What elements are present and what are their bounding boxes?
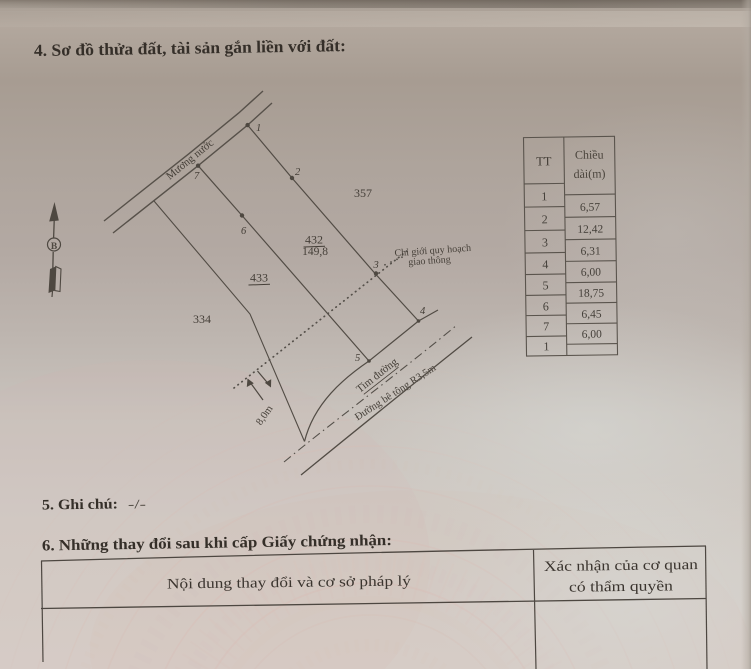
- svg-text:7: 7: [194, 171, 200, 182]
- svg-text:1: 1: [541, 189, 547, 203]
- svg-text:18,75: 18,75: [578, 288, 604, 300]
- svg-text:2: 2: [542, 212, 548, 226]
- svg-text:432: 432: [305, 233, 323, 247]
- svg-text:6,57: 6,57: [580, 202, 601, 214]
- svg-text:B: B: [51, 242, 58, 252]
- svg-text:6: 6: [241, 226, 247, 237]
- svg-text:433: 433: [250, 271, 268, 285]
- svg-text:6,00: 6,00: [581, 267, 602, 279]
- svg-text:5. Ghi chú:: 5. Ghi chú:: [42, 496, 118, 513]
- svg-text:dài(m): dài(m): [573, 166, 605, 180]
- svg-text:TT: TT: [536, 154, 552, 168]
- svg-text:4: 4: [420, 306, 426, 317]
- svg-text:6,00: 6,00: [582, 329, 603, 341]
- svg-text:6: 6: [543, 299, 549, 313]
- svg-text:3: 3: [542, 235, 548, 249]
- svg-text:4: 4: [542, 257, 548, 271]
- svg-text:12,42: 12,42: [577, 224, 603, 236]
- svg-text:149,8: 149,8: [302, 246, 328, 258]
- svg-text:6,45: 6,45: [581, 309, 602, 321]
- svg-text:1: 1: [543, 339, 549, 353]
- svg-text:có thẩm quyền: có thẩm quyền: [569, 578, 674, 595]
- svg-text:Chiều: Chiều: [575, 148, 604, 162]
- svg-text:2: 2: [295, 167, 301, 178]
- svg-text:5: 5: [355, 353, 360, 364]
- svg-text:3: 3: [373, 260, 379, 271]
- svg-text:-/-: -/-: [128, 496, 146, 511]
- svg-text:7: 7: [543, 319, 549, 333]
- svg-text:6,31: 6,31: [580, 246, 601, 258]
- svg-text:5: 5: [542, 278, 548, 292]
- svg-text:Nội dung thay đổi và cơ sở phá: Nội dung thay đổi và cơ sở pháp lý: [167, 573, 412, 592]
- svg-text:1: 1: [256, 123, 261, 134]
- svg-text:Xác nhận của cơ quan: Xác nhận của cơ quan: [544, 557, 699, 575]
- svg-text:334: 334: [193, 312, 211, 326]
- svg-text:357: 357: [354, 186, 372, 200]
